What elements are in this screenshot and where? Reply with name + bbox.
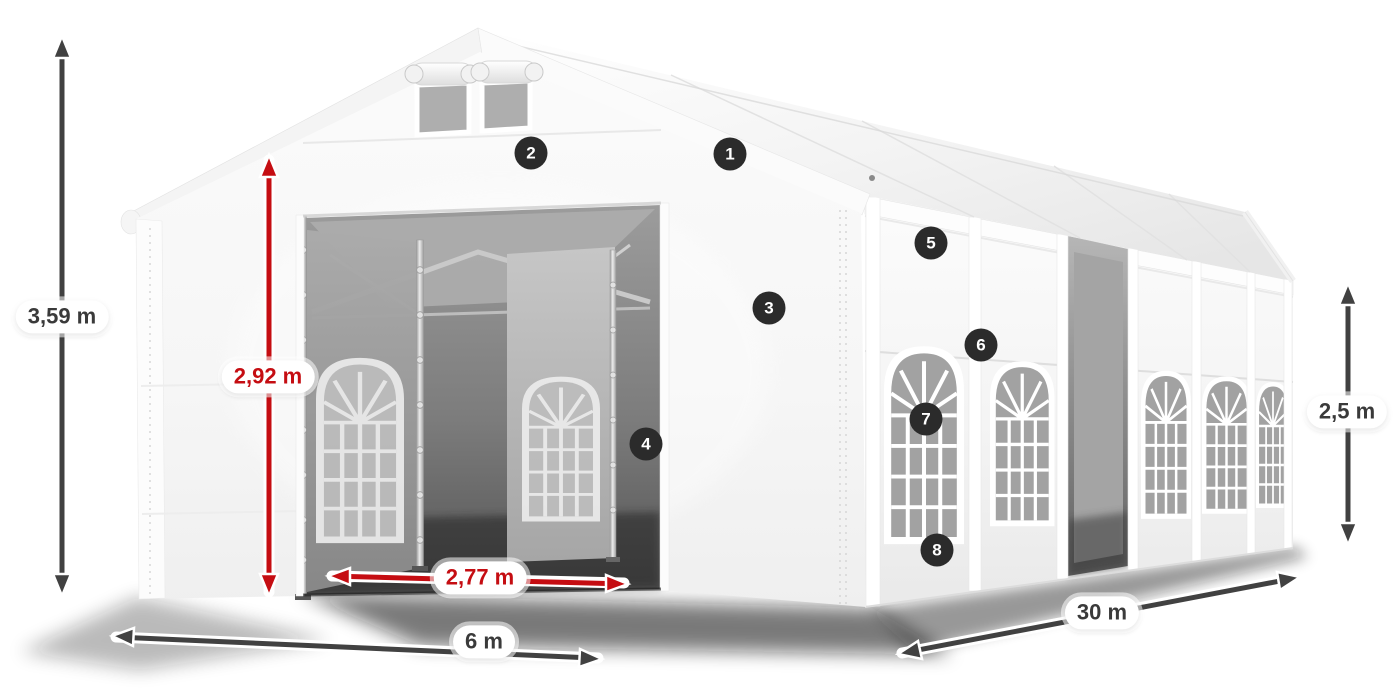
feature-marker-8[interactable]: 8 — [921, 534, 954, 567]
feature-marker-6[interactable]: 6 — [965, 329, 998, 362]
feature-marker-3[interactable]: 3 — [753, 292, 786, 325]
tent-illustration — [0, 0, 1400, 700]
front-entrance — [295, 203, 669, 600]
dimension-label-total-height: 3,59 m — [16, 300, 109, 333]
dimension-label-front-width: 6 m — [453, 625, 515, 658]
dimension-label-entrance-width: 2,77 m — [434, 561, 527, 594]
tent-dimension-diagram: 3,59 m 2,92 m 2,77 m 6 m 30 m 2,5 m 1 2 … — [0, 0, 1400, 700]
dimension-label-entrance-height: 2,92 m — [222, 360, 315, 393]
side-door-opening — [1068, 236, 1128, 576]
side-window-4 — [1202, 376, 1251, 513]
entrance-door-panel-far — [507, 247, 615, 562]
dimension-label-side-length: 30 m — [1065, 596, 1139, 629]
vent-roll-left — [405, 63, 479, 85]
feature-marker-4[interactable]: 4 — [630, 428, 663, 461]
feature-marker-2[interactable]: 2 — [515, 137, 548, 170]
side-window-2 — [990, 361, 1055, 526]
entrance-door-panel-near — [307, 230, 420, 592]
vent-roll-right — [471, 61, 543, 83]
side-window-3 — [1141, 371, 1191, 519]
feature-marker-1[interactable]: 1 — [714, 138, 747, 171]
feature-marker-7[interactable]: 7 — [910, 403, 943, 436]
dimension-label-wall-height: 2,5 m — [1307, 395, 1387, 428]
side-window-1 — [884, 346, 964, 544]
feature-marker-5[interactable]: 5 — [915, 227, 948, 260]
